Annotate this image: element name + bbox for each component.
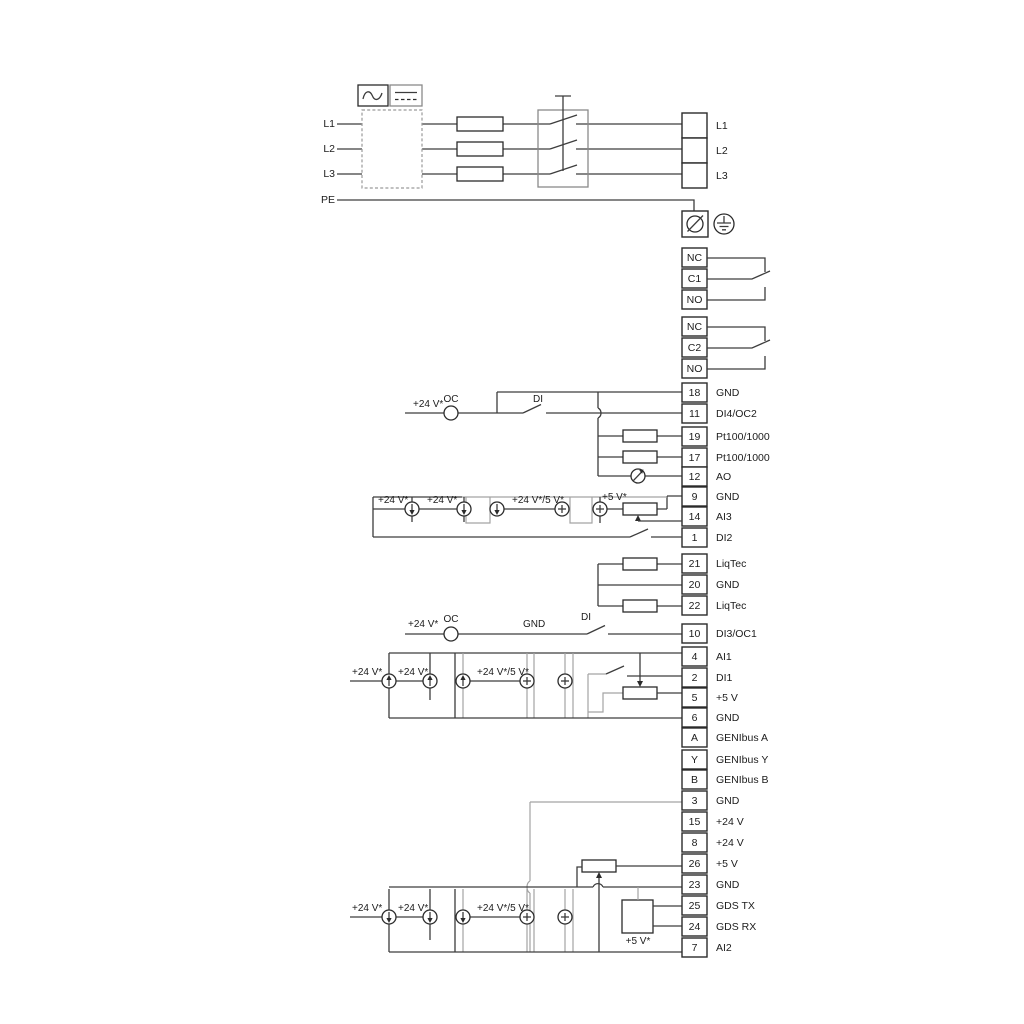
terminal-label: DI4/OC2 [716, 408, 757, 420]
relay2-contact-icon [707, 327, 770, 369]
potentiometer-icon [623, 687, 657, 699]
terminal-label: GND [716, 795, 740, 807]
power-input-section: L1 L2 L3 PE L1 L2 L3 [321, 85, 734, 237]
terminal-label: LiqTec [716, 600, 746, 612]
v24-label: +24 V* [352, 667, 382, 678]
terminal-number: 4 [692, 651, 698, 663]
terminal-number: 5 [692, 692, 698, 704]
terminal-label: GND [716, 879, 740, 891]
terminal-number: 11 [689, 408, 700, 420]
v24-label: +24 V* [413, 399, 443, 410]
terminal-number: 7 [692, 942, 698, 954]
v24-label: +24 V* [427, 495, 457, 506]
plus-source-icon [593, 502, 607, 516]
terminal-label: GND [716, 579, 740, 591]
current-source-icon [456, 674, 470, 688]
output-terminal-l2 [682, 138, 707, 163]
relay1-contact-icon [707, 258, 770, 300]
terminal-label: GND [716, 712, 740, 724]
potentiometer-icon [582, 860, 616, 872]
terminal-number: 14 [689, 511, 701, 523]
terminal-number: A [691, 732, 698, 744]
terminal-label: DI3/OC1 [716, 628, 757, 640]
terminal-label: DI2 [716, 532, 733, 544]
v24v5-label: +24 V*/5 V* [477, 667, 529, 678]
terminal-number: 8 [692, 837, 698, 849]
terminal-number: Y [691, 754, 698, 766]
v24-label: +24 V* [398, 667, 428, 678]
potentiometer-icon [623, 503, 657, 515]
terminal-number: 21 [689, 558, 701, 570]
terminal-label: GDS TX [716, 900, 755, 912]
terminal-label: GENIbus A [716, 732, 768, 744]
fuse-l3-icon [457, 167, 503, 181]
liqtec-resistor-icon [623, 600, 657, 612]
rfi-filter-box [362, 110, 422, 188]
oc-output-icon [444, 627, 458, 641]
current-source-icon [382, 674, 396, 688]
output-terminal-l3 [682, 163, 707, 188]
di-label: DI [581, 612, 591, 623]
output-terminal-l1 [682, 113, 707, 138]
terminal-number: 12 [689, 471, 701, 483]
terminal-label: AI3 [716, 511, 732, 523]
io-block-d: +24 V* +24 V* +24 V*/5 V* 4 2 5 6 A Y B … [350, 647, 769, 789]
mains-output-terminals: L1 L2 L3 [682, 113, 728, 188]
di-label: DI [533, 394, 543, 405]
terminal-number: 2 [692, 672, 698, 684]
terminal-label: AO [716, 471, 731, 483]
oc-label: OC [444, 394, 459, 405]
terminal-label: GND [716, 387, 740, 399]
input-line-label-l1: L1 [323, 118, 335, 130]
current-source-icon [382, 910, 396, 924]
input-line-label-l2: L2 [323, 143, 335, 155]
v24-label: +24 V* [408, 619, 438, 630]
terminal-label: +5 V [716, 858, 738, 870]
v5-label: +5 V* [602, 492, 627, 503]
plus-source-icon [558, 674, 572, 688]
output-label-l3: L3 [716, 170, 728, 182]
terminal-label: GND [716, 491, 740, 503]
terminal-number: 6 [692, 712, 698, 724]
gnd3-wiring [527, 802, 682, 952]
wiring-diagram: L1 L2 L3 PE L1 L2 L3 [0, 0, 1024, 1024]
earth-ground-icon [714, 214, 734, 234]
terminal-number: 22 [689, 600, 701, 612]
terminal-label: +24 V [716, 837, 744, 849]
terminal-label: LiqTec [716, 558, 746, 570]
relay2-no-label: NO [687, 363, 703, 375]
pot-wiper-icon [596, 872, 602, 878]
terminal-label: DI1 [716, 672, 733, 684]
mains-wiring [337, 124, 694, 211]
input-line-label-l3: L3 [323, 168, 335, 180]
terminal-number: 15 [689, 816, 701, 828]
pt100-resistor-icon [623, 451, 657, 463]
v24v5-label: +24 V*/5 V* [512, 495, 564, 506]
plus-source-icon [558, 910, 572, 924]
relay1-section: NC C1 NO [682, 248, 770, 309]
terminal-number: 1 [692, 532, 698, 544]
terminal-label: Pt100/1000 [716, 431, 770, 443]
terminal-number: 19 [689, 431, 701, 443]
output-label-l1: L1 [716, 120, 728, 132]
relay2-section: NC C2 NO [682, 317, 770, 378]
relay1-c1-label: C1 [688, 273, 702, 285]
terminal-number: 9 [692, 491, 698, 503]
io-block-c: +24 V* OC GND DI 10 DI3/OC1 [405, 612, 757, 643]
relay2-nc-label: NC [687, 321, 703, 333]
io-block-a: +24 V* OC DI 18 11 19 17 12 9 14 1 GND D… [373, 383, 770, 547]
pot-wiper-icon [635, 515, 641, 521]
io-block-e: +24 V* +24 V* +24 V*/5 V* +5 V* 3 15 8 2… [350, 791, 756, 957]
io-block-b: 21 20 22 LiqTec GND LiqTec [598, 554, 746, 615]
v24-label: +24 V* [378, 495, 408, 506]
terminal-number: 10 [689, 628, 701, 640]
ai1-sensor-group: +24 V* +24 V* +24 V*/5 V* [350, 653, 682, 718]
oc-label: OC [444, 614, 459, 625]
ai3-sensor-group: +24 V* +24 V* +24 V*/5 V* +5 V* [373, 492, 682, 537]
liqtec-resistor-icon [623, 558, 657, 570]
v24-label: +24 V* [352, 903, 382, 914]
terminal-number: 3 [692, 795, 698, 807]
v24v5-label: +24 V*/5 V* [477, 903, 529, 914]
terminal-label: Pt100/1000 [716, 452, 770, 464]
oc-output-icon [444, 406, 458, 420]
relay1-no-label: NO [687, 294, 703, 306]
terminal-number: 26 [689, 858, 701, 870]
current-source-icon [490, 502, 504, 516]
terminal-number: B [691, 774, 698, 786]
gnd-label: GND [523, 619, 545, 630]
v24-label: +24 V* [398, 903, 428, 914]
terminal-number: 20 [689, 579, 701, 591]
v5-label: +5 V* [626, 936, 651, 947]
terminal-label: GENIbus B [716, 774, 769, 786]
pe-terminal-icon [682, 211, 708, 237]
ai2-pot-gds-wiring: +5 V* [389, 860, 682, 952]
terminal-label: AI1 [716, 651, 732, 663]
terminal-label: GENIbus Y [716, 754, 768, 766]
terminal-number: 25 [689, 900, 701, 912]
terminal-number: 23 [689, 879, 701, 891]
terminal-label: AI2 [716, 942, 732, 954]
fuse-l2-icon [457, 142, 503, 156]
wiring-diagram-canvas: L1 L2 L3 PE L1 L2 L3 [0, 0, 1024, 1024]
current-source-icon [457, 502, 471, 516]
relay1-nc-label: NC [687, 252, 703, 264]
dc-symbol [390, 85, 422, 106]
terminal-label: +5 V [716, 692, 738, 704]
current-source-icon [456, 910, 470, 924]
input-line-label-pe: PE [321, 194, 335, 206]
terminal-number: 24 [689, 921, 701, 933]
terminal-number: 17 [689, 452, 701, 464]
terminal-label: GDS RX [716, 921, 756, 933]
terminal-number: 18 [689, 387, 701, 399]
ac-symbol [358, 85, 388, 106]
gds-sensor-box [622, 900, 653, 933]
ao-meter-icon [631, 469, 645, 483]
output-label-l2: L2 [716, 145, 728, 157]
pt100-resistor-icon [623, 430, 657, 442]
relay2-c2-label: C2 [688, 342, 702, 354]
fuse-l1-icon [457, 117, 503, 131]
terminal-label: +24 V [716, 816, 744, 828]
